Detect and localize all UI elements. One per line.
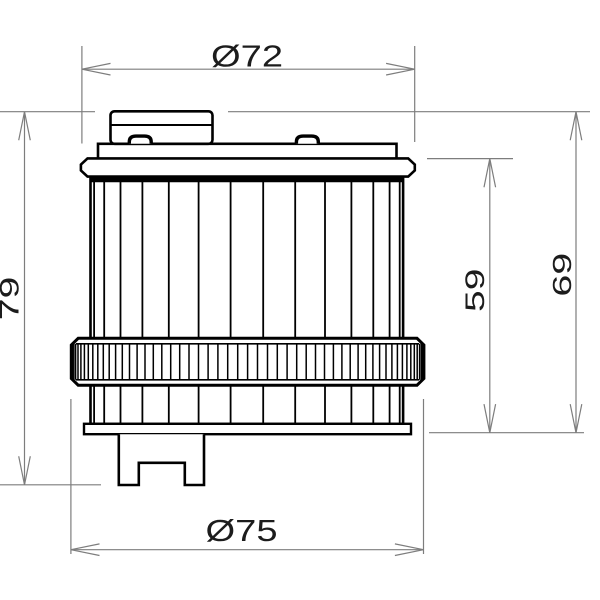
- svg-text:59: 59: [461, 269, 490, 312]
- svg-text:Ø72: Ø72: [211, 40, 283, 74]
- svg-text:Ø75: Ø75: [205, 514, 277, 548]
- svg-text:79: 79: [0, 277, 25, 321]
- svg-text:69: 69: [549, 253, 577, 297]
